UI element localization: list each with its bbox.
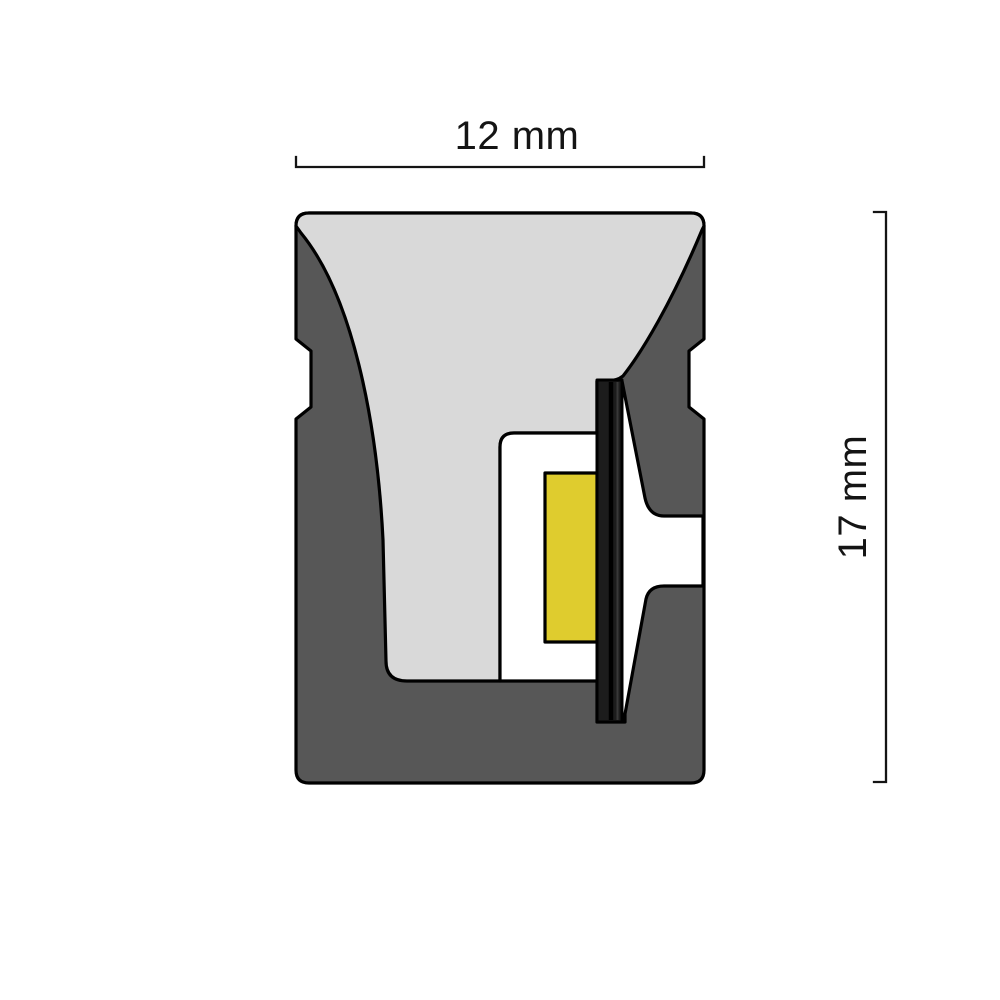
height-dimension-label: 17 mm [831, 435, 875, 560]
height-dimension-bracket [874, 212, 886, 782]
width-dimension: 12 mm [296, 114, 704, 167]
diagram-canvas: 12 mm 17 mm [0, 0, 1000, 1000]
led-chip [545, 473, 597, 642]
pcb-strip [597, 380, 622, 722]
width-dimension-bracket [296, 157, 704, 167]
width-dimension-label: 12 mm [455, 114, 580, 158]
height-dimension: 17 mm [831, 212, 886, 782]
cross-section-diagram: 12 mm 17 mm [0, 0, 1000, 1000]
